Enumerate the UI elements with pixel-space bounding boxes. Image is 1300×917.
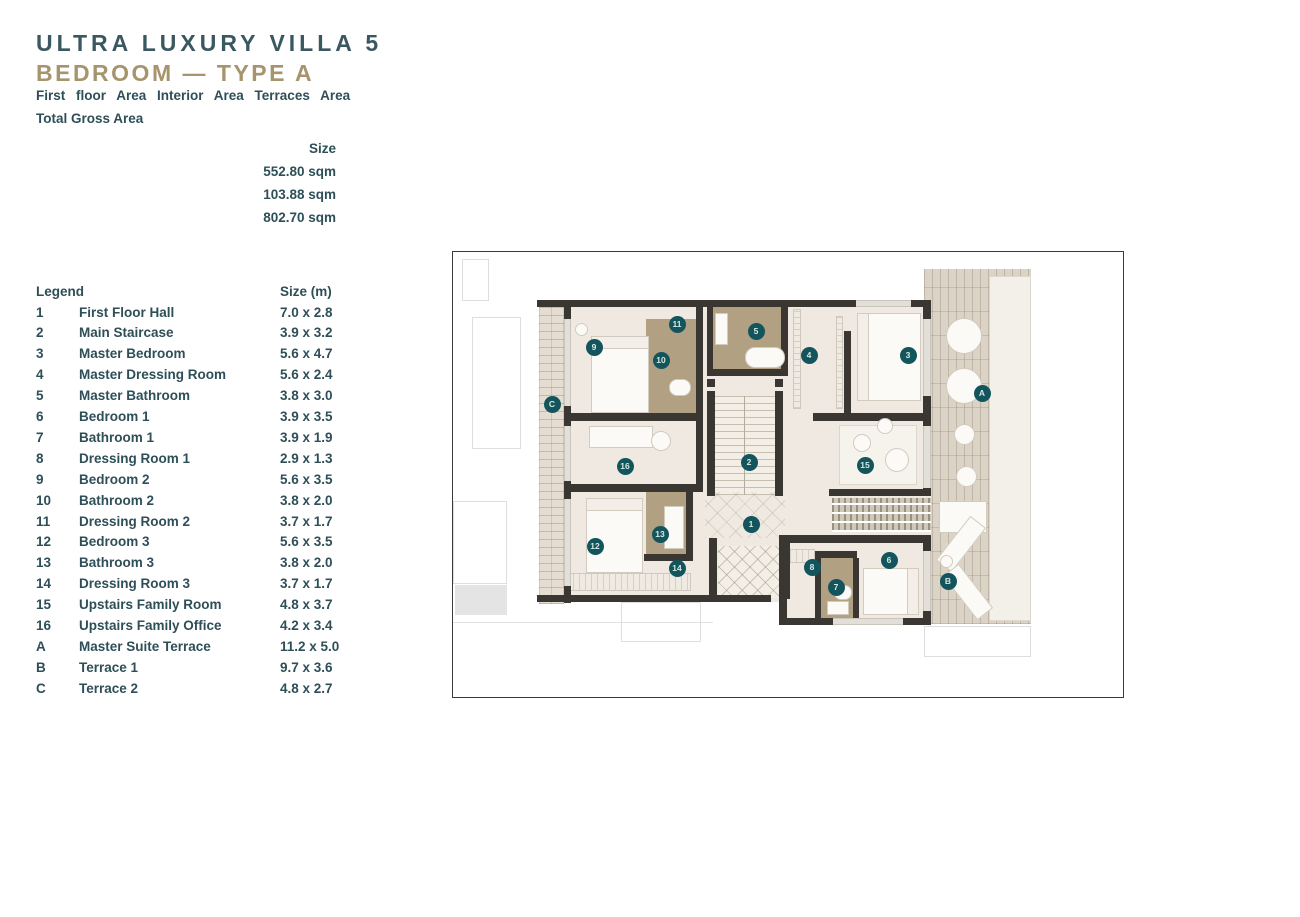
room-marker-16: 16 — [617, 458, 634, 475]
site-block — [455, 585, 507, 615]
size-values: 552.80 sqm103.88 sqm802.70 sqm — [150, 160, 336, 229]
wall — [564, 484, 703, 492]
legend-row-size: 3.8 x 2.0 — [280, 491, 342, 512]
terrace-planter — [989, 276, 1031, 621]
wall — [537, 595, 771, 602]
legend-row-id: 7 — [36, 428, 79, 449]
wall — [696, 307, 703, 491]
legend-rows: 1First Floor Hall7.0 x 2.82Main Staircas… — [36, 303, 342, 700]
legend-row-id: 8 — [36, 449, 79, 470]
legend-row-size: 3.8 x 2.0 — [280, 553, 342, 574]
window — [564, 499, 571, 586]
legend-row-size: 4.8 x 3.7 — [280, 595, 342, 616]
bed-headboard — [857, 313, 869, 401]
total-gross-area-label: Total Gross Area — [36, 111, 143, 126]
legend-row-id: C — [36, 679, 79, 700]
legend-row-size: 3.8 x 3.0 — [280, 386, 342, 407]
area-size-value: 552.80 sqm — [150, 160, 336, 183]
legend-row-id: 4 — [36, 365, 79, 386]
legend-row-id: 11 — [36, 512, 79, 533]
room-marker-15: 15 — [857, 457, 874, 474]
legend-row: 11Dressing Room 23.7 x 1.7 — [36, 512, 342, 533]
legend-row: 16Upstairs Family Office4.2 x 3.4 — [36, 616, 342, 637]
bathtub — [745, 347, 785, 368]
room-marker-A: A — [974, 385, 991, 402]
room-marker-2: 2 — [741, 454, 758, 471]
legend-row-id: 13 — [36, 553, 79, 574]
legend-row-id: 9 — [36, 470, 79, 491]
vanity — [664, 506, 684, 549]
window — [923, 551, 931, 611]
terrace-table — [954, 424, 975, 445]
window — [923, 426, 931, 488]
legend-row-name: Dressing Room 3 — [79, 574, 280, 595]
legend-row: 14Dressing Room 33.7 x 1.7 — [36, 574, 342, 595]
legend-row-id: B — [36, 658, 79, 679]
legend-row-name: Master Bathroom — [79, 386, 280, 407]
page-title: ULTRA LUXURY VILLA 5 — [36, 30, 382, 57]
legend-header: Legend Size (m) — [36, 281, 342, 303]
legend-row-id: 15 — [36, 595, 79, 616]
legend-row: 9Bedroom 25.6 x 3.5 — [36, 470, 342, 491]
room-marker-7: 7 — [828, 579, 845, 596]
legend-title: Legend — [36, 281, 280, 303]
wall — [829, 489, 931, 496]
room-marker-C: C — [544, 396, 561, 413]
staircase-center-line — [744, 396, 745, 495]
wall — [644, 554, 693, 561]
legend-row-id: 2 — [36, 323, 79, 344]
legend-row-name: Master Bedroom — [79, 344, 280, 365]
legend-row-name: Bathroom 2 — [79, 491, 280, 512]
area-size-block: Size 552.80 sqm103.88 sqm802.70 sqm — [150, 137, 336, 229]
wall — [564, 413, 703, 421]
legend-row-size: 4.2 x 3.4 — [280, 616, 342, 637]
legend-row-name: Dressing Room 1 — [79, 449, 280, 470]
legend-row-id: 14 — [36, 574, 79, 595]
terrace-table — [940, 555, 953, 568]
wall — [709, 538, 717, 599]
wall — [853, 558, 859, 618]
legend-row: BTerrace 19.7 x 3.6 — [36, 658, 342, 679]
wall — [707, 369, 788, 376]
legend-row-name: First Floor Hall — [79, 303, 280, 324]
legend-row-name: Bathroom 3 — [79, 553, 280, 574]
legend-row: CTerrace 24.8 x 2.7 — [36, 679, 342, 700]
terrace-outline — [924, 626, 1031, 657]
legend-row-size: 2.9 x 1.3 — [280, 449, 342, 470]
armchair — [853, 434, 871, 452]
legend-row-name: Main Staircase — [79, 323, 280, 344]
terrace-2-deck — [539, 301, 564, 604]
legend-row-size: 3.9 x 3.2 — [280, 323, 342, 344]
legend-row-size: 5.6 x 3.5 — [280, 532, 342, 553]
legend-row-name: Master Suite Terrace — [79, 637, 280, 658]
wall — [686, 488, 693, 561]
room-marker-8: 8 — [804, 559, 821, 576]
bed-pillows — [586, 498, 643, 511]
room-marker-4: 4 — [801, 347, 818, 364]
room-marker-1: 1 — [743, 516, 760, 533]
legend-row-size: 3.7 x 1.7 — [280, 574, 342, 595]
room-marker-3: 3 — [900, 347, 917, 364]
floor-plan: 12345678910111213141516ABC — [452, 251, 1124, 698]
legend-row-name: Terrace 1 — [79, 658, 280, 679]
site-outline — [453, 501, 507, 584]
size-column-header: Size — [150, 137, 336, 160]
window — [856, 300, 911, 307]
legend-row: 3Master Bedroom5.6 x 4.7 — [36, 344, 342, 365]
page-subtitle: BEDROOM — TYPE A — [36, 60, 314, 87]
nightstand — [575, 323, 588, 336]
legend-row-size: 11.2 x 5.0 — [280, 637, 342, 658]
room-marker-5: 5 — [748, 323, 765, 340]
wall — [844, 331, 851, 413]
legend-row: 4Master Dressing Room5.6 x 2.4 — [36, 365, 342, 386]
side-table — [877, 418, 893, 434]
legend-row: 12Bedroom 35.6 x 3.5 — [36, 532, 342, 553]
legend-row-size: 7.0 x 2.8 — [280, 303, 342, 324]
site-outline — [462, 259, 489, 301]
legend-row-id: 6 — [36, 407, 79, 428]
hall-floor-pattern — [705, 492, 785, 538]
legend-row-size: 3.7 x 1.7 — [280, 512, 342, 533]
window — [564, 319, 571, 406]
wall — [813, 413, 931, 421]
wardrobe — [836, 316, 843, 409]
legend-row: 1First Floor Hall7.0 x 2.8 — [36, 303, 342, 324]
room-marker-11: 11 — [669, 316, 686, 333]
legend-row-id: 10 — [36, 491, 79, 512]
area-size-value: 802.70 sqm — [150, 206, 336, 229]
legend-row-size: 5.6 x 3.5 — [280, 470, 342, 491]
room-marker-12: 12 — [587, 538, 604, 555]
legend-row-name: Bedroom 3 — [79, 532, 280, 553]
window — [923, 319, 931, 396]
legend-row: AMaster Suite Terrace11.2 x 5.0 — [36, 637, 342, 658]
legend-row-size: 5.6 x 4.7 — [280, 344, 342, 365]
legend-row-name: Upstairs Family Room — [79, 595, 280, 616]
room-marker-9: 9 — [586, 339, 603, 356]
window — [833, 618, 903, 625]
terrace-chair — [946, 318, 982, 354]
legend-table: Legend Size (m) 1First Floor Hall7.0 x 2… — [36, 281, 342, 700]
legend-row: 7Bathroom 13.9 x 1.9 — [36, 428, 342, 449]
wall — [707, 391, 715, 496]
stair-flight-down — [718, 546, 782, 598]
window — [564, 426, 571, 481]
bed-headboard — [907, 568, 919, 615]
legend-row-name: Bedroom 2 — [79, 470, 280, 491]
room-marker-10: 10 — [653, 352, 670, 369]
room-marker-6: 6 — [881, 552, 898, 569]
legend-row-name: Bathroom 1 — [79, 428, 280, 449]
legend-row: 8Dressing Room 12.9 x 1.3 — [36, 449, 342, 470]
wall-pillar — [707, 379, 715, 387]
legend-row-name: Terrace 2 — [79, 679, 280, 700]
legend-row-id: 3 — [36, 344, 79, 365]
legend-row: 15Upstairs Family Room4.8 x 3.7 — [36, 595, 342, 616]
legend-row-id: 1 — [36, 303, 79, 324]
legend-row-size: 4.8 x 2.7 — [280, 679, 342, 700]
legend-row-size: 9.7 x 3.6 — [280, 658, 342, 679]
legend-row-id: A — [36, 637, 79, 658]
legend-row: 13Bathroom 33.8 x 2.0 — [36, 553, 342, 574]
legend-row-id: 16 — [36, 616, 79, 637]
terrace-table — [956, 466, 977, 487]
desk-chair — [651, 431, 671, 451]
wall — [775, 391, 783, 496]
site-outline — [621, 602, 701, 642]
legend-row-name: Upstairs Family Office — [79, 616, 280, 637]
wall — [707, 303, 713, 376]
legend-row-name: Dressing Room 2 — [79, 512, 280, 533]
desk — [589, 426, 653, 448]
armchair — [885, 448, 909, 472]
sink — [669, 379, 691, 396]
wall — [781, 535, 931, 543]
room-marker-13: 13 — [652, 526, 669, 543]
area-labels: First floor Area Interior Area Terraces … — [36, 88, 350, 103]
legend-row: 5Master Bathroom3.8 x 3.0 — [36, 386, 342, 407]
staircase-treads — [715, 396, 775, 495]
site-outline — [472, 317, 521, 449]
legend-row-id: 12 — [36, 532, 79, 553]
legend-row-size: 3.9 x 1.9 — [280, 428, 342, 449]
legend-size-header: Size (m) — [280, 281, 342, 303]
legend-row-name: Bedroom 1 — [79, 407, 280, 428]
wall — [815, 551, 857, 558]
vanity — [715, 313, 728, 345]
wardrobe — [793, 309, 801, 409]
legend-row-size: 5.6 x 2.4 — [280, 365, 342, 386]
legend-row-size: 3.9 x 3.5 — [280, 407, 342, 428]
legend-row-name: Master Dressing Room — [79, 365, 280, 386]
room-marker-B: B — [940, 573, 957, 590]
legend-row: 10Bathroom 23.8 x 2.0 — [36, 491, 342, 512]
room-marker-14: 14 — [669, 560, 686, 577]
shower — [827, 601, 849, 615]
legend-row: 6Bedroom 13.9 x 3.5 — [36, 407, 342, 428]
area-size-value: 103.88 sqm — [150, 183, 336, 206]
legend-row: 2Main Staircase3.9 x 3.2 — [36, 323, 342, 344]
wall-pillar — [775, 379, 783, 387]
wall — [779, 535, 787, 625]
legend-row-id: 5 — [36, 386, 79, 407]
pergola-louvers — [832, 498, 931, 532]
